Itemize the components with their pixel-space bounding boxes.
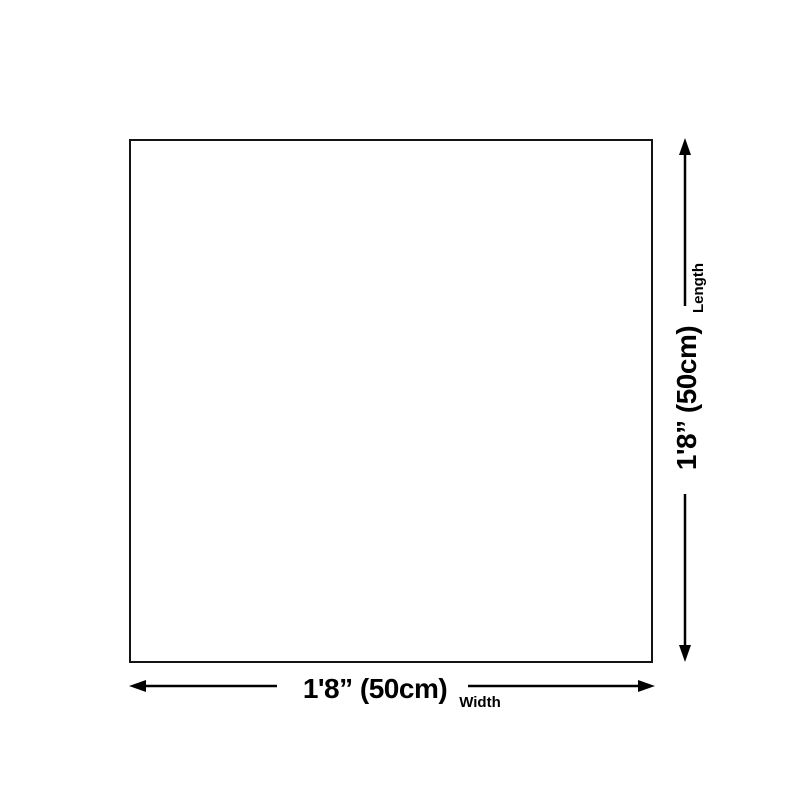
dimension-diagram: Length 1'8” (50cm) 1'8” (50cm) Width	[0, 0, 800, 800]
length-arrow-down-icon	[677, 494, 693, 662]
product-outline-square	[129, 139, 653, 663]
width-arrow-right-icon	[468, 678, 655, 694]
width-arrow-left-icon	[129, 678, 277, 694]
length-dimension-value: 1'8” (50cm)	[669, 308, 705, 488]
width-axis-label: Width	[445, 694, 515, 712]
